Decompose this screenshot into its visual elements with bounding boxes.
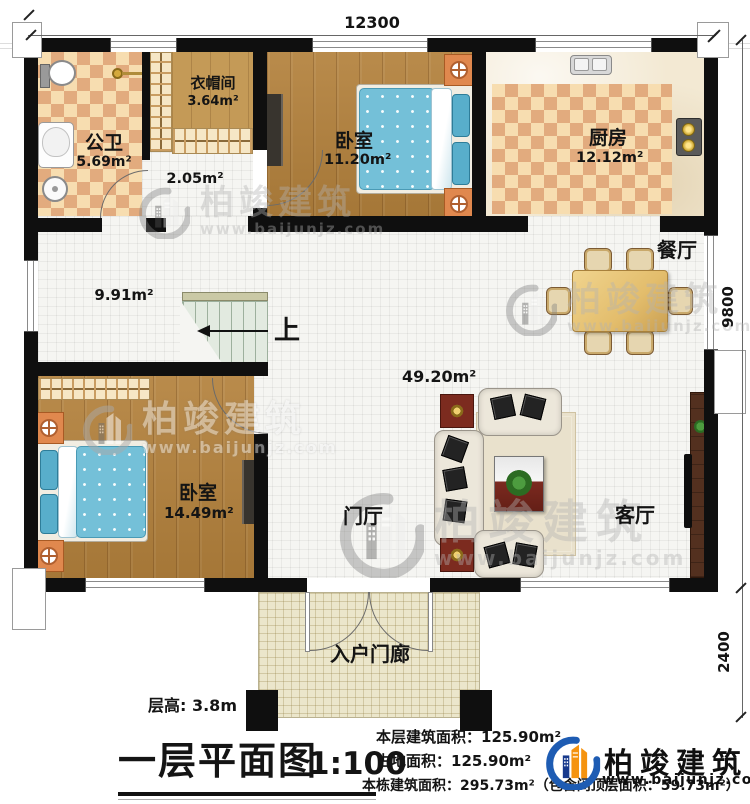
room-label-bedroom-top: 卧室 xyxy=(328,132,380,152)
window xyxy=(535,38,652,52)
wall-segment xyxy=(660,216,718,232)
dimension-right: 9800 xyxy=(719,275,737,339)
porch-pillar xyxy=(460,690,492,731)
room-label-foyer: 门厅 xyxy=(338,506,388,527)
shower-basin-bowl xyxy=(42,127,70,157)
room-label-dining: 餐厅 xyxy=(652,240,702,261)
closet-hatch-vertical xyxy=(150,52,172,152)
room-area-bathroom: 5.69m² xyxy=(70,155,138,170)
dining-chair xyxy=(668,287,693,315)
brand-website: www.baijunjz.com xyxy=(602,772,750,788)
room-label-bathroom: 公卫 xyxy=(73,134,135,154)
window xyxy=(85,578,205,592)
sofa-pillow xyxy=(442,466,467,491)
stairs-stringer xyxy=(182,292,268,301)
wall-segment xyxy=(430,578,520,592)
wall-segment xyxy=(146,218,166,232)
floor-plan-canvas: 柏竣建筑 www.baijunjz.com 柏竣建筑 www.baijunjz.… xyxy=(0,0,750,804)
wall-segment xyxy=(24,218,102,232)
sofa-pillow xyxy=(490,394,516,420)
dimension-terminal-box xyxy=(697,22,729,58)
bed-pillow xyxy=(452,94,470,137)
wall-segment xyxy=(704,38,718,235)
stove-burner-icon xyxy=(682,139,695,152)
bed-sheet-fold xyxy=(58,446,78,538)
bed-sheet-fold xyxy=(431,88,452,190)
dining-chair xyxy=(626,330,654,355)
room-label-living: 客厅 xyxy=(610,505,660,526)
floor-height-note: 层高: 3.8m xyxy=(148,698,278,715)
wall-segment xyxy=(254,434,268,578)
open-space-area: 49.20m² xyxy=(402,369,470,386)
room-area-bedroom-bottom: 14.49m² xyxy=(164,506,230,522)
end-table-ornament-icon xyxy=(449,403,465,419)
window xyxy=(520,578,670,592)
wall-segment xyxy=(205,578,307,592)
nightstand-lamp-icon xyxy=(40,547,58,565)
kitchen-sink-bowl xyxy=(574,58,589,71)
room-area-cloakroom: 3.64m² xyxy=(184,95,242,109)
dining-chair xyxy=(546,287,571,315)
bed-pillow xyxy=(40,450,58,490)
bed-pillow xyxy=(452,142,470,185)
nightstand xyxy=(34,412,64,444)
dimension-line-right-lower xyxy=(742,588,743,718)
window xyxy=(704,235,718,350)
bed-pillow xyxy=(40,494,58,534)
bed-mattress xyxy=(76,446,146,538)
dining-chair xyxy=(584,330,612,355)
plant-icon xyxy=(506,470,532,496)
stove-burner-icon xyxy=(682,123,695,136)
nightstand-lamp-icon xyxy=(450,61,468,79)
title-underline xyxy=(118,792,376,796)
kitchen-rug xyxy=(492,84,672,214)
nightstand xyxy=(444,54,474,86)
room-area-kitchen: 12.12m² xyxy=(576,151,640,166)
brand-logo-icon xyxy=(542,736,602,790)
stairs-direction-line xyxy=(208,330,268,332)
wall-segment xyxy=(24,362,268,376)
nightstand-lamp-icon xyxy=(450,195,468,213)
room-label-cloakroom: 衣帽间 xyxy=(178,76,248,92)
cloakroom-closet-hatch xyxy=(172,128,253,154)
sofa-pillow xyxy=(512,542,537,567)
window xyxy=(312,38,428,52)
nightstand-lamp-icon xyxy=(40,419,58,437)
stairs-arrow-head-icon xyxy=(197,325,210,337)
room-area-corridor: 9.91m² xyxy=(94,288,154,304)
room-label-kitchen: 厨房 xyxy=(582,129,634,149)
wall-segment xyxy=(142,52,150,160)
title-underline-thin xyxy=(118,799,376,800)
bedroom-bottom-wardrobe-hatch xyxy=(38,378,150,400)
wall-segment xyxy=(428,38,535,52)
dining-table xyxy=(572,270,668,332)
door-leaf xyxy=(428,592,433,652)
toilet-bowl xyxy=(48,60,76,86)
room-area-bedroom-top: 11.20m² xyxy=(324,153,384,168)
dimension-tick xyxy=(735,711,746,722)
room-label-bedroom-bottom: 卧室 xyxy=(172,484,224,504)
wall-segment xyxy=(177,38,312,52)
end-table-ornament-icon xyxy=(449,547,465,563)
window xyxy=(110,38,177,52)
dimension-porch: 2400 xyxy=(715,620,733,684)
sofa-pillow xyxy=(443,499,468,524)
wall-segment xyxy=(670,578,718,592)
towel-bar xyxy=(122,72,144,75)
tv-screen xyxy=(684,454,692,528)
room-area-hallway: 2.05m² xyxy=(164,172,226,187)
dimension-tick xyxy=(735,582,746,593)
room-label-porch: 入户门廊 xyxy=(322,644,418,665)
kitchen-sink-bowl xyxy=(592,58,607,71)
wall-segment xyxy=(253,52,267,150)
dimension-line-right xyxy=(742,40,743,588)
wall-segment xyxy=(472,52,486,216)
dimension-line-top xyxy=(28,35,716,36)
dimension-top: 12300 xyxy=(330,13,414,32)
dimension-tick xyxy=(23,9,34,20)
dimension-terminal-box xyxy=(12,568,46,630)
washbasin-drain xyxy=(52,186,58,192)
wall-segment xyxy=(248,216,528,232)
stairs-up-label: 上 xyxy=(272,318,302,345)
window xyxy=(24,260,38,332)
